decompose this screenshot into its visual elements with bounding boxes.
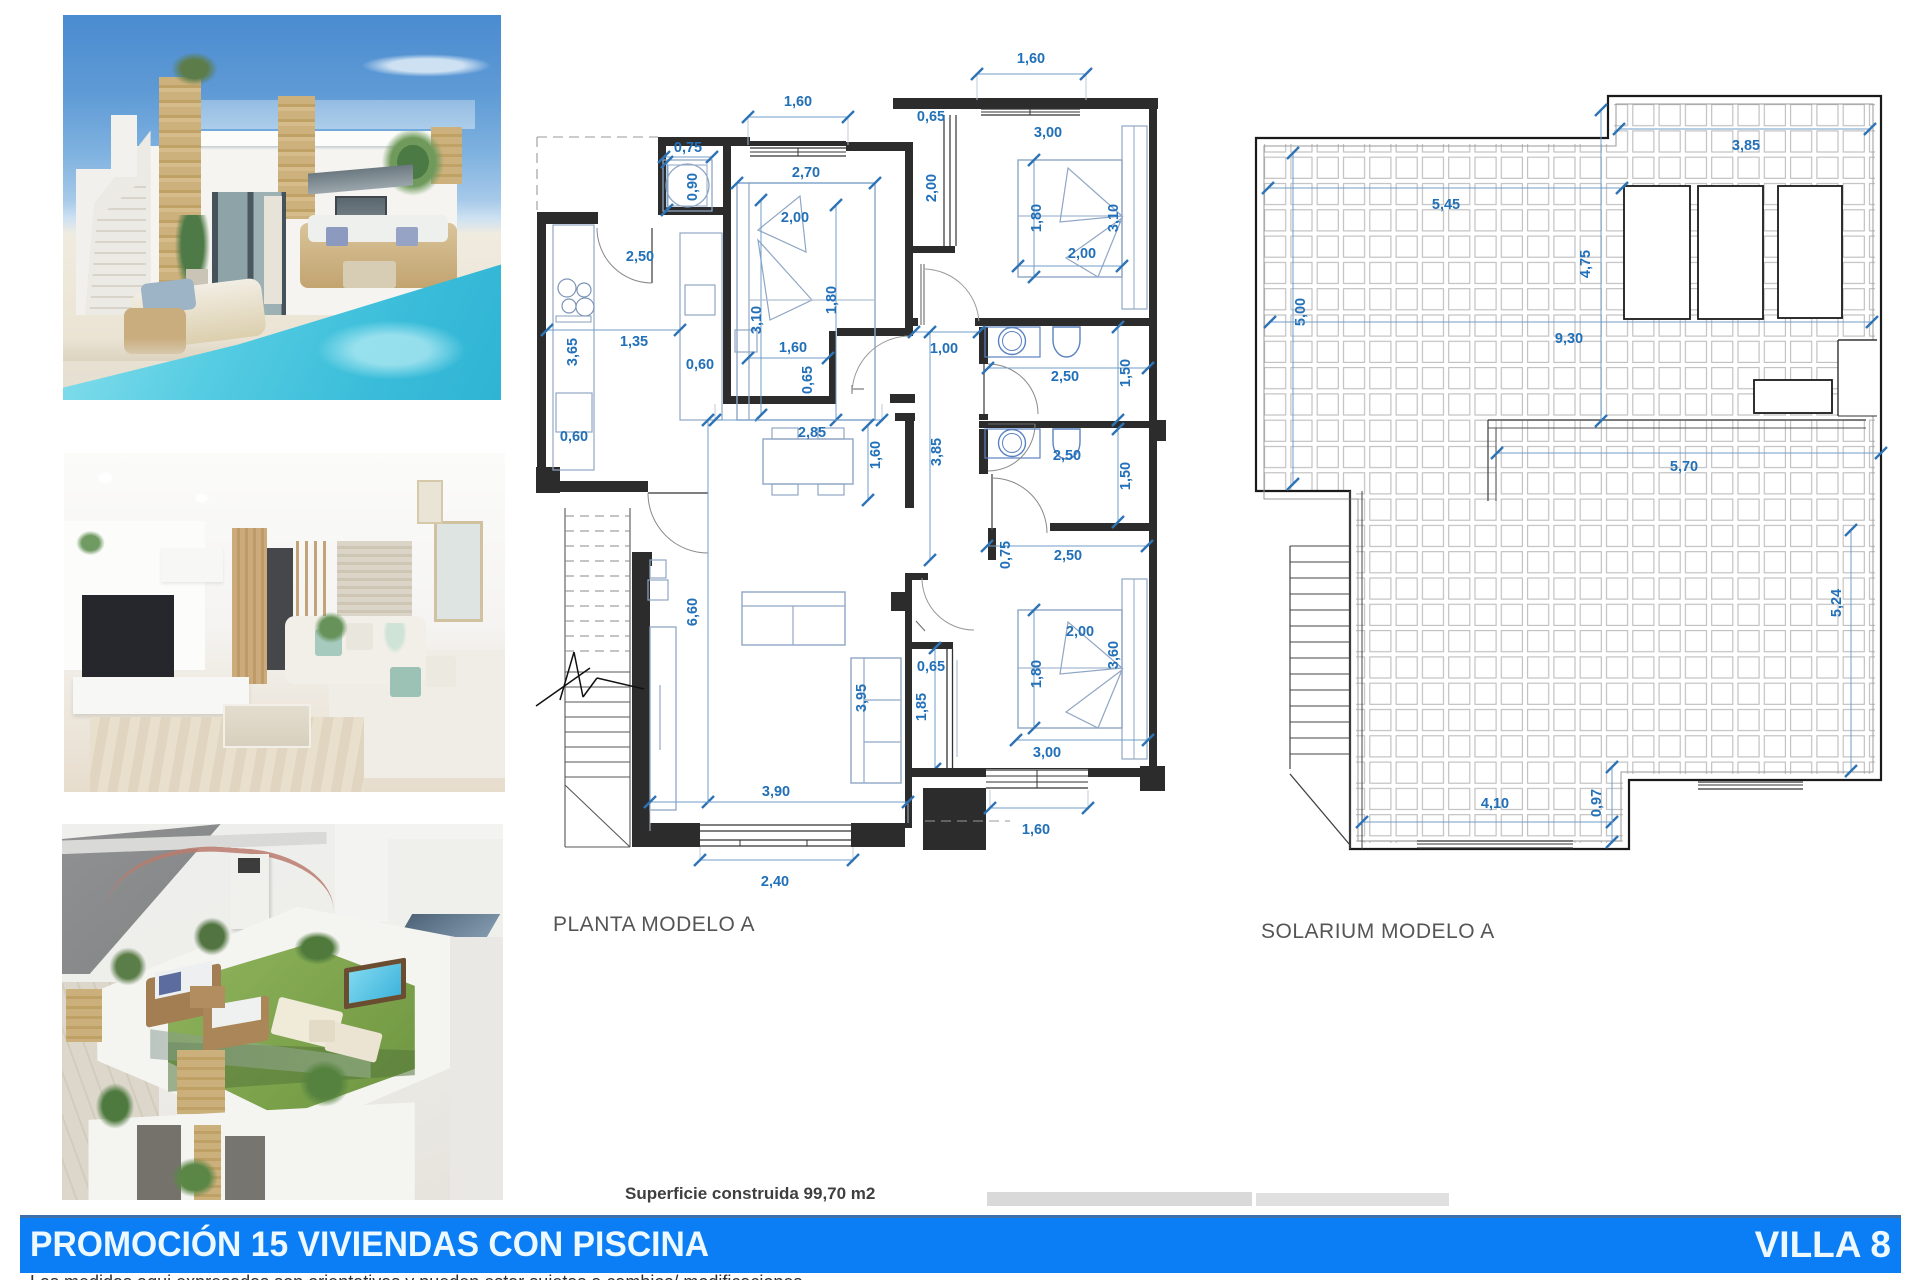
svg-text:3,10: 3,10 bbox=[749, 306, 765, 334]
svg-text:0,60: 0,60 bbox=[560, 429, 588, 445]
svg-text:0,65: 0,65 bbox=[917, 109, 945, 125]
svg-text:2,40: 2,40 bbox=[761, 874, 789, 890]
svg-text:2,70: 2,70 bbox=[792, 165, 820, 181]
svg-text:5,70: 5,70 bbox=[1670, 459, 1698, 475]
svg-text:0,75: 0,75 bbox=[674, 140, 702, 156]
svg-text:3,10: 3,10 bbox=[1106, 204, 1122, 232]
svg-text:9,30: 9,30 bbox=[1555, 331, 1583, 347]
svg-text:5,45: 5,45 bbox=[1432, 197, 1460, 213]
svg-text:1,60: 1,60 bbox=[1022, 822, 1050, 838]
svg-text:1,80: 1,80 bbox=[824, 286, 840, 314]
svg-text:5,24: 5,24 bbox=[1829, 589, 1845, 617]
svg-text:2,50: 2,50 bbox=[626, 249, 654, 265]
svg-text:1,35: 1,35 bbox=[620, 334, 648, 350]
svg-text:3,85: 3,85 bbox=[929, 438, 945, 466]
svg-text:1,60: 1,60 bbox=[784, 94, 812, 110]
svg-text:6,60: 6,60 bbox=[685, 598, 701, 626]
svg-text:1,60: 1,60 bbox=[1017, 51, 1045, 67]
svg-text:3,00: 3,00 bbox=[1033, 745, 1061, 761]
svg-text:1,85: 1,85 bbox=[914, 693, 930, 721]
svg-text:3,85: 3,85 bbox=[1732, 138, 1760, 154]
svg-text:3,60: 3,60 bbox=[1106, 641, 1122, 669]
svg-text:0,60: 0,60 bbox=[686, 357, 714, 373]
svg-text:2,00: 2,00 bbox=[924, 174, 940, 202]
svg-text:1,00: 1,00 bbox=[930, 341, 958, 357]
svg-text:0,90: 0,90 bbox=[685, 173, 701, 201]
svg-text:1,80: 1,80 bbox=[1029, 660, 1045, 688]
svg-text:2,00: 2,00 bbox=[1066, 624, 1094, 640]
svg-text:0,65: 0,65 bbox=[917, 659, 945, 675]
svg-text:1,50: 1,50 bbox=[1118, 359, 1134, 387]
svg-text:0,65: 0,65 bbox=[800, 366, 816, 394]
svg-text:4,10: 4,10 bbox=[1481, 796, 1509, 812]
svg-text:3,95: 3,95 bbox=[854, 684, 870, 712]
svg-text:0,75: 0,75 bbox=[998, 541, 1014, 569]
svg-text:2,50: 2,50 bbox=[1051, 369, 1079, 385]
svg-text:3,65: 3,65 bbox=[565, 338, 581, 366]
svg-text:2,50: 2,50 bbox=[1054, 548, 1082, 564]
svg-text:2,85: 2,85 bbox=[798, 425, 826, 441]
svg-text:1,80: 1,80 bbox=[1029, 204, 1045, 232]
svg-text:1,60: 1,60 bbox=[779, 340, 807, 356]
svg-text:2,00: 2,00 bbox=[781, 210, 809, 226]
svg-text:1,60: 1,60 bbox=[868, 441, 884, 469]
svg-text:4,75: 4,75 bbox=[1578, 250, 1594, 278]
svg-text:2,50: 2,50 bbox=[1053, 448, 1081, 464]
svg-text:1,50: 1,50 bbox=[1118, 462, 1134, 490]
svg-text:0,97: 0,97 bbox=[1589, 789, 1605, 817]
svg-text:3,90: 3,90 bbox=[762, 784, 790, 800]
svg-text:3,00: 3,00 bbox=[1034, 125, 1062, 141]
svg-text:2,00: 2,00 bbox=[1068, 246, 1096, 262]
